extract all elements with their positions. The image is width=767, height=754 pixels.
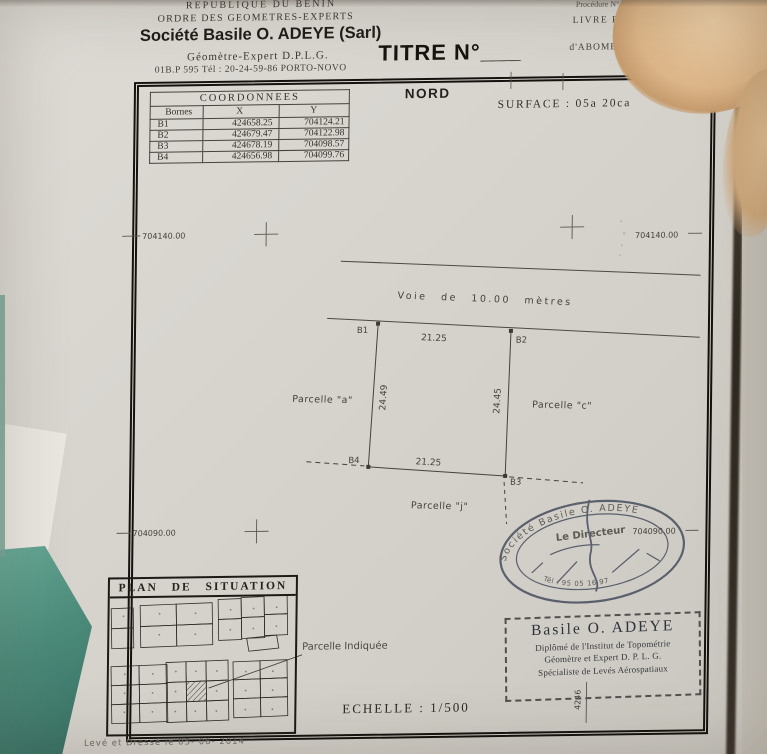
grid-label-top-left: 704140.00 xyxy=(142,231,185,241)
dashed-extension-down xyxy=(504,482,508,524)
situation-title: PLAN DE SITUATION xyxy=(110,577,296,599)
parcelle-c-label: Parcelle "c" xyxy=(532,400,592,412)
indicated-parcel-label: Parcelle Indiquée xyxy=(302,641,388,653)
road-label: Voie de 10.00 mètres xyxy=(397,290,573,308)
seal-ornament xyxy=(531,549,660,576)
parcelle-j-label: Parcelle "j" xyxy=(411,500,469,512)
dim-left: 24.49 xyxy=(378,384,390,410)
b1-label: B1 xyxy=(357,326,368,336)
document-content: REPUBLIQUE DU BENIN ORDRE DES GEOMETRES-… xyxy=(0,0,767,754)
b2-marker xyxy=(509,329,513,333)
situation-map xyxy=(108,596,292,727)
grid-label-bottom-left: 704090.00 xyxy=(133,529,176,539)
grid-cross xyxy=(560,215,584,239)
dim-top: 21.25 xyxy=(421,333,447,344)
road-lower-line xyxy=(327,313,700,342)
grid-cross xyxy=(244,519,268,543)
b2-label: B2 xyxy=(516,336,527,346)
road-upper-line xyxy=(341,256,701,280)
dim-right: 24.45 xyxy=(492,388,504,414)
situation-blocks xyxy=(110,596,289,725)
grid-label-top-right: 704140.00 xyxy=(635,230,678,240)
indicated-parcel xyxy=(186,681,206,702)
dim-bottom: 21.25 xyxy=(415,457,441,468)
grid-cross xyxy=(254,222,278,246)
signature-stroke xyxy=(555,549,642,583)
round-seal: Société Basile O. ADEYE Le Directeur Tél… xyxy=(493,489,688,612)
bleed-marks xyxy=(619,220,626,256)
parcel-boundary xyxy=(306,323,585,527)
parcel-right-side xyxy=(505,333,511,476)
top-edge-shadow xyxy=(0,0,767,7)
b4-marker xyxy=(366,465,370,469)
parcel-left-side xyxy=(368,326,378,467)
signature-stroke xyxy=(550,543,600,554)
b3-marker xyxy=(503,474,507,478)
scale-label: ECHELLE : 1/500 xyxy=(342,699,470,717)
left-edge-strip xyxy=(0,295,5,557)
scanned-survey-photo: REPUBLIQUE DU BENIN ORDRE DES GEOMETRES-… xyxy=(0,0,767,754)
situation-box: PLAN DE SITUATION xyxy=(106,575,298,737)
b3-label: B3 xyxy=(510,478,521,488)
b1-marker xyxy=(376,322,380,326)
surveyor-stamp-box: Basile O. ADEYE Diplômé de l'Institut de… xyxy=(505,611,702,702)
grid-label-bottom-right: 704090.00 xyxy=(632,527,675,537)
parcelle-a-label: Parcelle "a" xyxy=(292,394,353,406)
b4-label: B4 xyxy=(348,456,359,466)
